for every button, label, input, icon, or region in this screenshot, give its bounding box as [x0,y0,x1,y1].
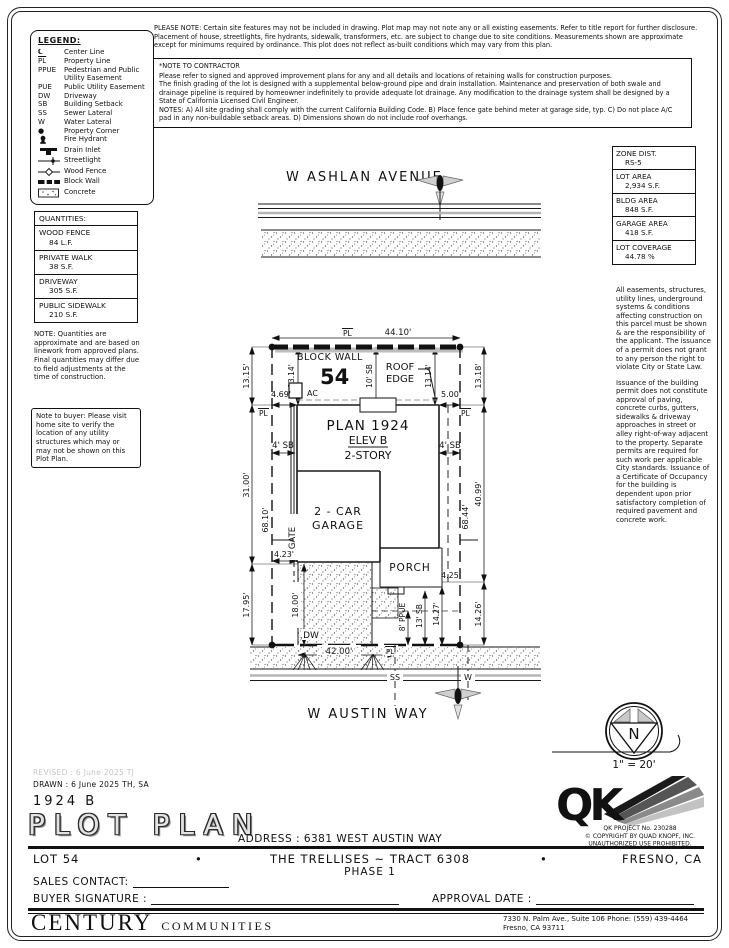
property-line-symbol: PL [38,57,64,65]
approval-date-label: APPROVAL DATE : [432,893,532,905]
please-note-text: PLEASE NOTE: Certain site features may n… [154,24,702,50]
legend-item: DWDriveway [38,92,150,100]
street-bottom-label: W AUSTIN WAY [307,707,428,722]
dim-rear: 14.27' [432,602,441,626]
centerline-symbol: ℄ [38,48,64,56]
dim-right-3: 14.26' [474,601,483,626]
legend-title: LEGEND: [38,36,150,45]
block-wall-icon [38,177,60,187]
lot-coverage-row: LOT COVERAGE44.78 % [612,240,696,265]
driveway-symbol: DW [38,92,64,100]
qk-project-number: QK PROJECT No. 230288 [603,825,676,832]
concrete-icon [38,188,60,198]
pl-label-east: PL [461,409,471,418]
lot-label: LOT 54 [33,852,79,866]
ppue-label: 8' PPUE [398,602,407,631]
garage-label-1: 2 - CAR [314,505,362,518]
public-sidewalk-row: PUBLIC SIDEWALK210 S.F. [34,298,138,324]
setback-rear-label: 13' SB [415,604,424,628]
builder-address-line1: 7330 N. Palm Ave., Suite 106 Phone: (559… [503,915,688,924]
contractor-note-p2: The finish grading of the lot is designe… [159,80,686,106]
legend-item: SBBuilding Setback [38,100,150,108]
contractor-note-p1: Please refer to signed and approved impr… [159,72,686,81]
sales-contact-line [133,876,229,888]
pl-label-west: PL [259,409,269,418]
plan-number: 1924 B [33,794,97,809]
north-arrow-icon: N [606,703,662,759]
svg-text:N: N [628,725,639,743]
roof-edge-label-2: EDGE [386,374,414,385]
zone-district-row: ZONE DIST.RS-5 [612,146,696,171]
builder-address: 7330 N. Palm Ave., Suite 106 Phone: (559… [503,915,688,934]
lot-number: 54 [320,365,349,389]
wood-fence-row: WOOD FENCE84 L.F. [34,225,138,251]
legend-item: ●Property Corner [38,127,150,135]
qk-logo-letters: QK [556,780,625,831]
phase-label: PHASE 1 [235,866,505,878]
street-top-label: W ASHLAN AVENUE [286,170,443,185]
garage-area-row: GARAGE AREA418 S.F. [612,216,696,241]
buyer-signature-row: BUYER SIGNATURE : [33,893,399,905]
pue-symbol: PUE [38,83,64,91]
dim-gate: 4.23' [274,550,294,559]
qk-logo-block: QK QK PROJECT No. 230288 © COPYRIGHT BY … [556,776,706,848]
water-symbol: W [38,118,64,126]
sales-contact-label: SALES CONTACT: [33,876,129,888]
legend-item: PLProperty Line [38,57,150,65]
sheet-title: PLOT PLAN [28,808,262,841]
drain-inlet-icon [38,146,60,156]
dim-left-2: 31.00' [242,472,251,497]
legend-item: PPUEPedestrian and Public Utility Easeme… [38,66,150,83]
pl-label-top: PL [343,329,353,338]
quantities-table: QUANTITIES: WOOD FENCE84 L.F. PRIVATE WA… [34,212,138,323]
contractor-note-title: *NOTE TO CONTRACTOR [159,62,686,71]
revised-line: REVISED : 6 June 2025 TJ [33,768,134,777]
buyer-signature-label: BUYER SIGNATURE : [33,893,147,905]
buyer-signature-line [151,893,399,905]
fire-hydrant-icon [38,135,60,145]
plan-elev: ELEV B [349,434,388,447]
water-label: W [464,673,472,682]
qk-copyright: © COPYRIGHT BY QUAD KNOPF, INC. [585,833,695,840]
bldg-area-row: BLDG AREA848 S.F. [612,193,696,218]
legend-item: PUEPublic Utility Easement [38,83,150,91]
address-line: ADDRESS : 6381 WEST AUSTIN WAY [238,833,442,845]
garage-label-2: GARAGE [312,519,364,532]
contractor-note-box: *NOTE TO CONTRACTOR Please refer to sign… [153,58,692,128]
entry-stoop [360,398,396,412]
legend-item: Fire Hydrant [38,135,150,145]
legend-item: WWater Lateral [38,118,150,126]
scale-label: 1" = 20' [612,759,655,771]
bullet-separator: • [195,852,203,866]
builder-name-secondary: COMMUNITIES [161,919,273,934]
legend-item: Drain Inlet [38,146,150,156]
easements-note: All easements, structures, utility lines… [616,286,713,531]
dim-right-1: 13.18' [474,363,483,388]
dim-left-3: 17.95' [242,592,251,617]
builder-address-line2: Fresno, CA 93711 [503,924,688,933]
legend-item: Streetlight [38,156,150,166]
builder-name-primary: CENTURY [31,910,152,936]
elev-right: 68.44' [461,504,470,529]
legend-item: Block Wall [38,177,150,187]
tract-label: THE TRELLISES ~ TRACT 6308 [235,852,505,866]
private-walk-row: PRIVATE WALK38 S.F. [34,250,138,276]
sales-contact-row: SALES CONTACT: [33,876,229,888]
setback-front-label: 10' SB [365,364,374,388]
easements-note-p1: All easements, structures, utility lines… [616,286,713,372]
setback-side-right: 4' SB [439,441,461,451]
driveway-row: DRIVEWAY305 S.F. [34,274,138,300]
elev-left: 68.10' [261,507,270,532]
ac-label: AC [307,389,318,398]
compass-block: N 1" = 20' [552,698,702,778]
property-corner-icon: ● [38,127,64,135]
legend-item: Concrete [38,188,150,198]
dim-driveway: 18.00' [291,592,300,617]
drawn-line: DRAWN : 6 June 2025 TH, SA [33,780,149,789]
dw-label: DW [303,631,319,641]
site-info-table: ZONE DIST.RS-5 LOT AREA2,934 S.F. BLDG A… [612,147,696,265]
city-label: FRESNO, CA [565,852,702,866]
bullet-separator: • [540,852,548,866]
streetlight-icon [435,688,481,719]
sewer-label: SS [390,673,400,682]
gate-label: GATE [288,527,298,549]
block-wall-label: BLOCK WALL [297,352,363,363]
sewer-symbol: SS [38,109,64,117]
dim-house-left: 4.69' [271,390,291,399]
lot-area-row: LOT AREA2,934 S.F. [612,169,696,194]
roof-edge-label-1: ROOF [386,362,415,373]
plot-drawing: W ASHLAN AVENUE 44.10' PL 13.15' 31.00 [158,150,618,780]
dim-inner-right: 13.14' [424,364,433,388]
dim-porch: 4.25' [441,571,461,580]
legend-item: ℄Center Line [38,48,150,56]
ppue-symbol: PPUE [38,66,64,74]
wood-fence-icon [38,167,60,177]
plan-story: 2-STORY [345,449,392,462]
setback-symbol: SB [38,100,64,108]
approval-date-row: APPROVAL DATE : [432,893,694,905]
streetlight-icon [38,156,60,166]
builder-logo: CENTURY COMMUNITIES [31,910,274,936]
quantities-note: NOTE: Quantities are approximate and are… [34,330,141,382]
legend-item: SSSewer Lateral [38,109,150,117]
porch-label: PORCH [389,562,431,574]
divider-rule [28,846,704,849]
dim-right-2: 40.99' [474,481,483,506]
dim-top: 44.10' [385,328,412,338]
contractor-note-p3: NOTES: A) All site grading shall comply … [159,106,686,123]
dim-left-1: 13.15' [242,363,251,388]
walk-area [372,588,398,618]
sidewalk-north [261,230,541,257]
plan-name: PLAN 1924 [327,418,410,434]
easements-note-p2: Issuance of the building permit does not… [616,379,713,525]
legend-box: LEGEND: ℄Center Line PLProperty Line PPU… [30,30,154,205]
legend-item: Wood Fence [38,167,150,177]
buyer-note-box: Note to buyer: Please visit home site to… [31,408,141,468]
dim-house-right: 5.00' [441,390,461,399]
quantities-header: QUANTITIES: [34,211,138,227]
approval-date-line [536,893,694,905]
